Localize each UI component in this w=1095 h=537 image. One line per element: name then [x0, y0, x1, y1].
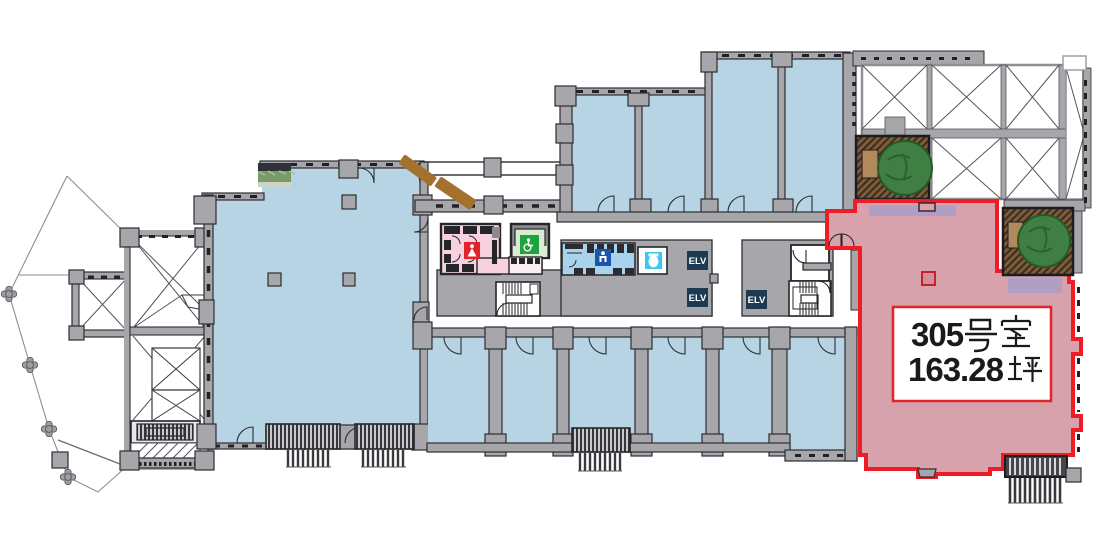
svg-text:305: 305 [911, 316, 964, 353]
svg-text:ELV: ELV [689, 256, 707, 267]
svg-text:ELV: ELV [748, 295, 766, 306]
svg-text:163.28: 163.28 [908, 351, 1004, 388]
svg-text:ELV: ELV [689, 293, 707, 304]
